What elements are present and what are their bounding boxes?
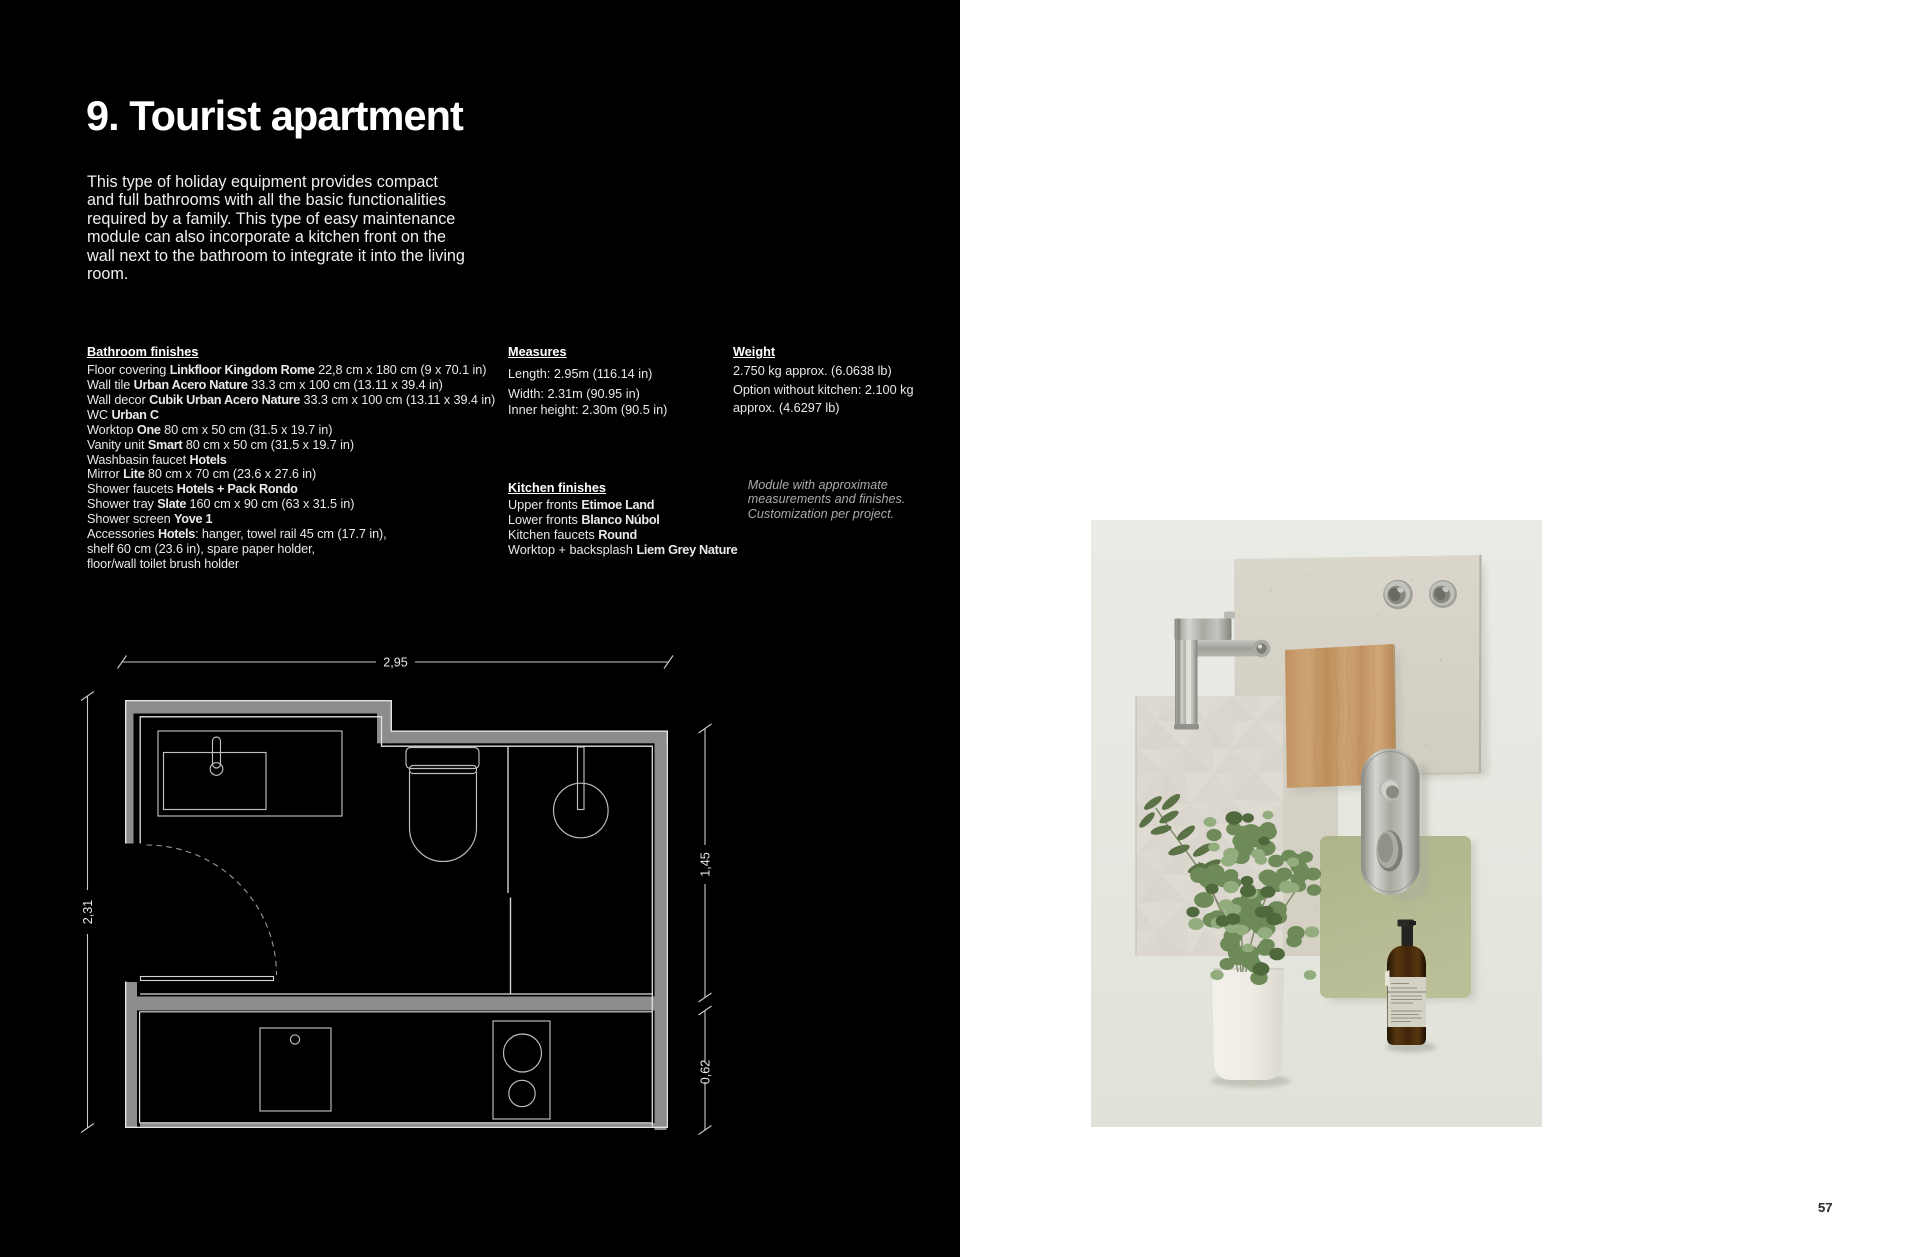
svg-text:2,31: 2,31: [81, 900, 95, 925]
svg-text:1,45: 1,45: [699, 852, 713, 877]
svg-text:0,62: 0,62: [699, 1060, 713, 1085]
svg-text:2,95: 2,95: [383, 656, 408, 670]
